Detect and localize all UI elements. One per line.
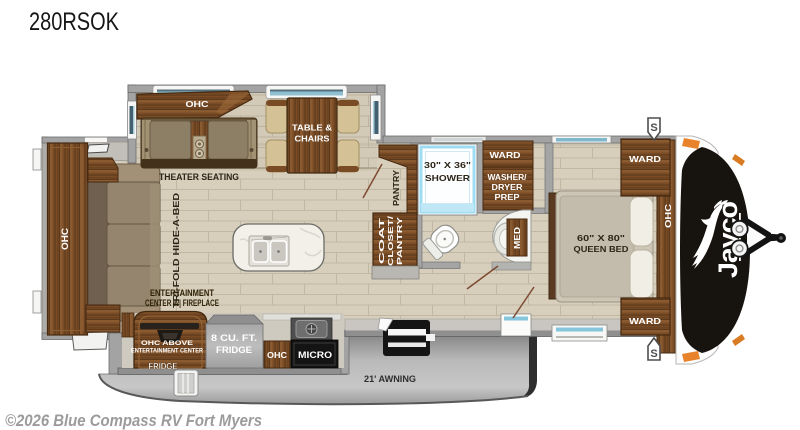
svg-text:OHC: OHC — [60, 227, 70, 250]
svg-text:PREP: PREP — [495, 193, 521, 202]
svg-text:QUEEN BED: QUEEN BED — [574, 244, 629, 254]
svg-text:OHC: OHC — [664, 204, 673, 228]
svg-text:TABLE &: TABLE & — [292, 124, 332, 133]
svg-text:FRIDGE: FRIDGE — [149, 361, 178, 371]
svg-text:WARD: WARD — [629, 316, 661, 326]
svg-text:OHC: OHC — [267, 350, 287, 360]
svg-text:OHC ABOVE: OHC ABOVE — [141, 340, 194, 347]
svg-text:PANTRY: PANTRY — [395, 217, 404, 265]
svg-text:S: S — [650, 122, 657, 134]
svg-text:30" X 36": 30" X 36" — [424, 160, 471, 170]
svg-text:21' AWNING: 21' AWNING — [364, 374, 416, 385]
svg-text:MICRO: MICRO — [298, 350, 332, 360]
svg-text:S: S — [650, 348, 657, 360]
svg-text:©2026 Blue Compass RV Fort Mye: ©2026 Blue Compass RV Fort Myers — [5, 411, 262, 430]
svg-text:COAT: COAT — [377, 217, 386, 264]
svg-text:280RSOK: 280RSOK — [29, 8, 119, 36]
svg-text:WASHER/: WASHER/ — [488, 173, 528, 182]
svg-text:FRIDGE: FRIDGE — [216, 345, 252, 355]
svg-text:60" X 80": 60" X 80" — [577, 233, 625, 243]
svg-text:THEATER SEATING: THEATER SEATING — [159, 172, 239, 183]
svg-text:SHOWER: SHOWER — [425, 173, 470, 183]
svg-text:ENTERTAINMENT: ENTERTAINMENT — [150, 288, 214, 298]
svg-text:ENTERTAINMENT CENTER: ENTERTAINMENT CENTER — [131, 348, 203, 355]
svg-text:CLOSET/: CLOSET/ — [386, 215, 395, 266]
svg-text:CENTER W| FIREPLACE: CENTER W| FIREPLACE — [145, 298, 219, 308]
svg-text:CHAIRS: CHAIRS — [295, 135, 331, 144]
svg-text:OHC: OHC — [186, 100, 209, 109]
svg-text:DRYER: DRYER — [492, 183, 523, 192]
svg-text:PANTRY: PANTRY — [391, 170, 401, 206]
svg-text:MED: MED — [513, 227, 522, 249]
svg-text:8 CU. FT.: 8 CU. FT. — [211, 333, 257, 343]
svg-text:WARD: WARD — [490, 150, 521, 160]
svg-text:WARD: WARD — [629, 154, 661, 164]
